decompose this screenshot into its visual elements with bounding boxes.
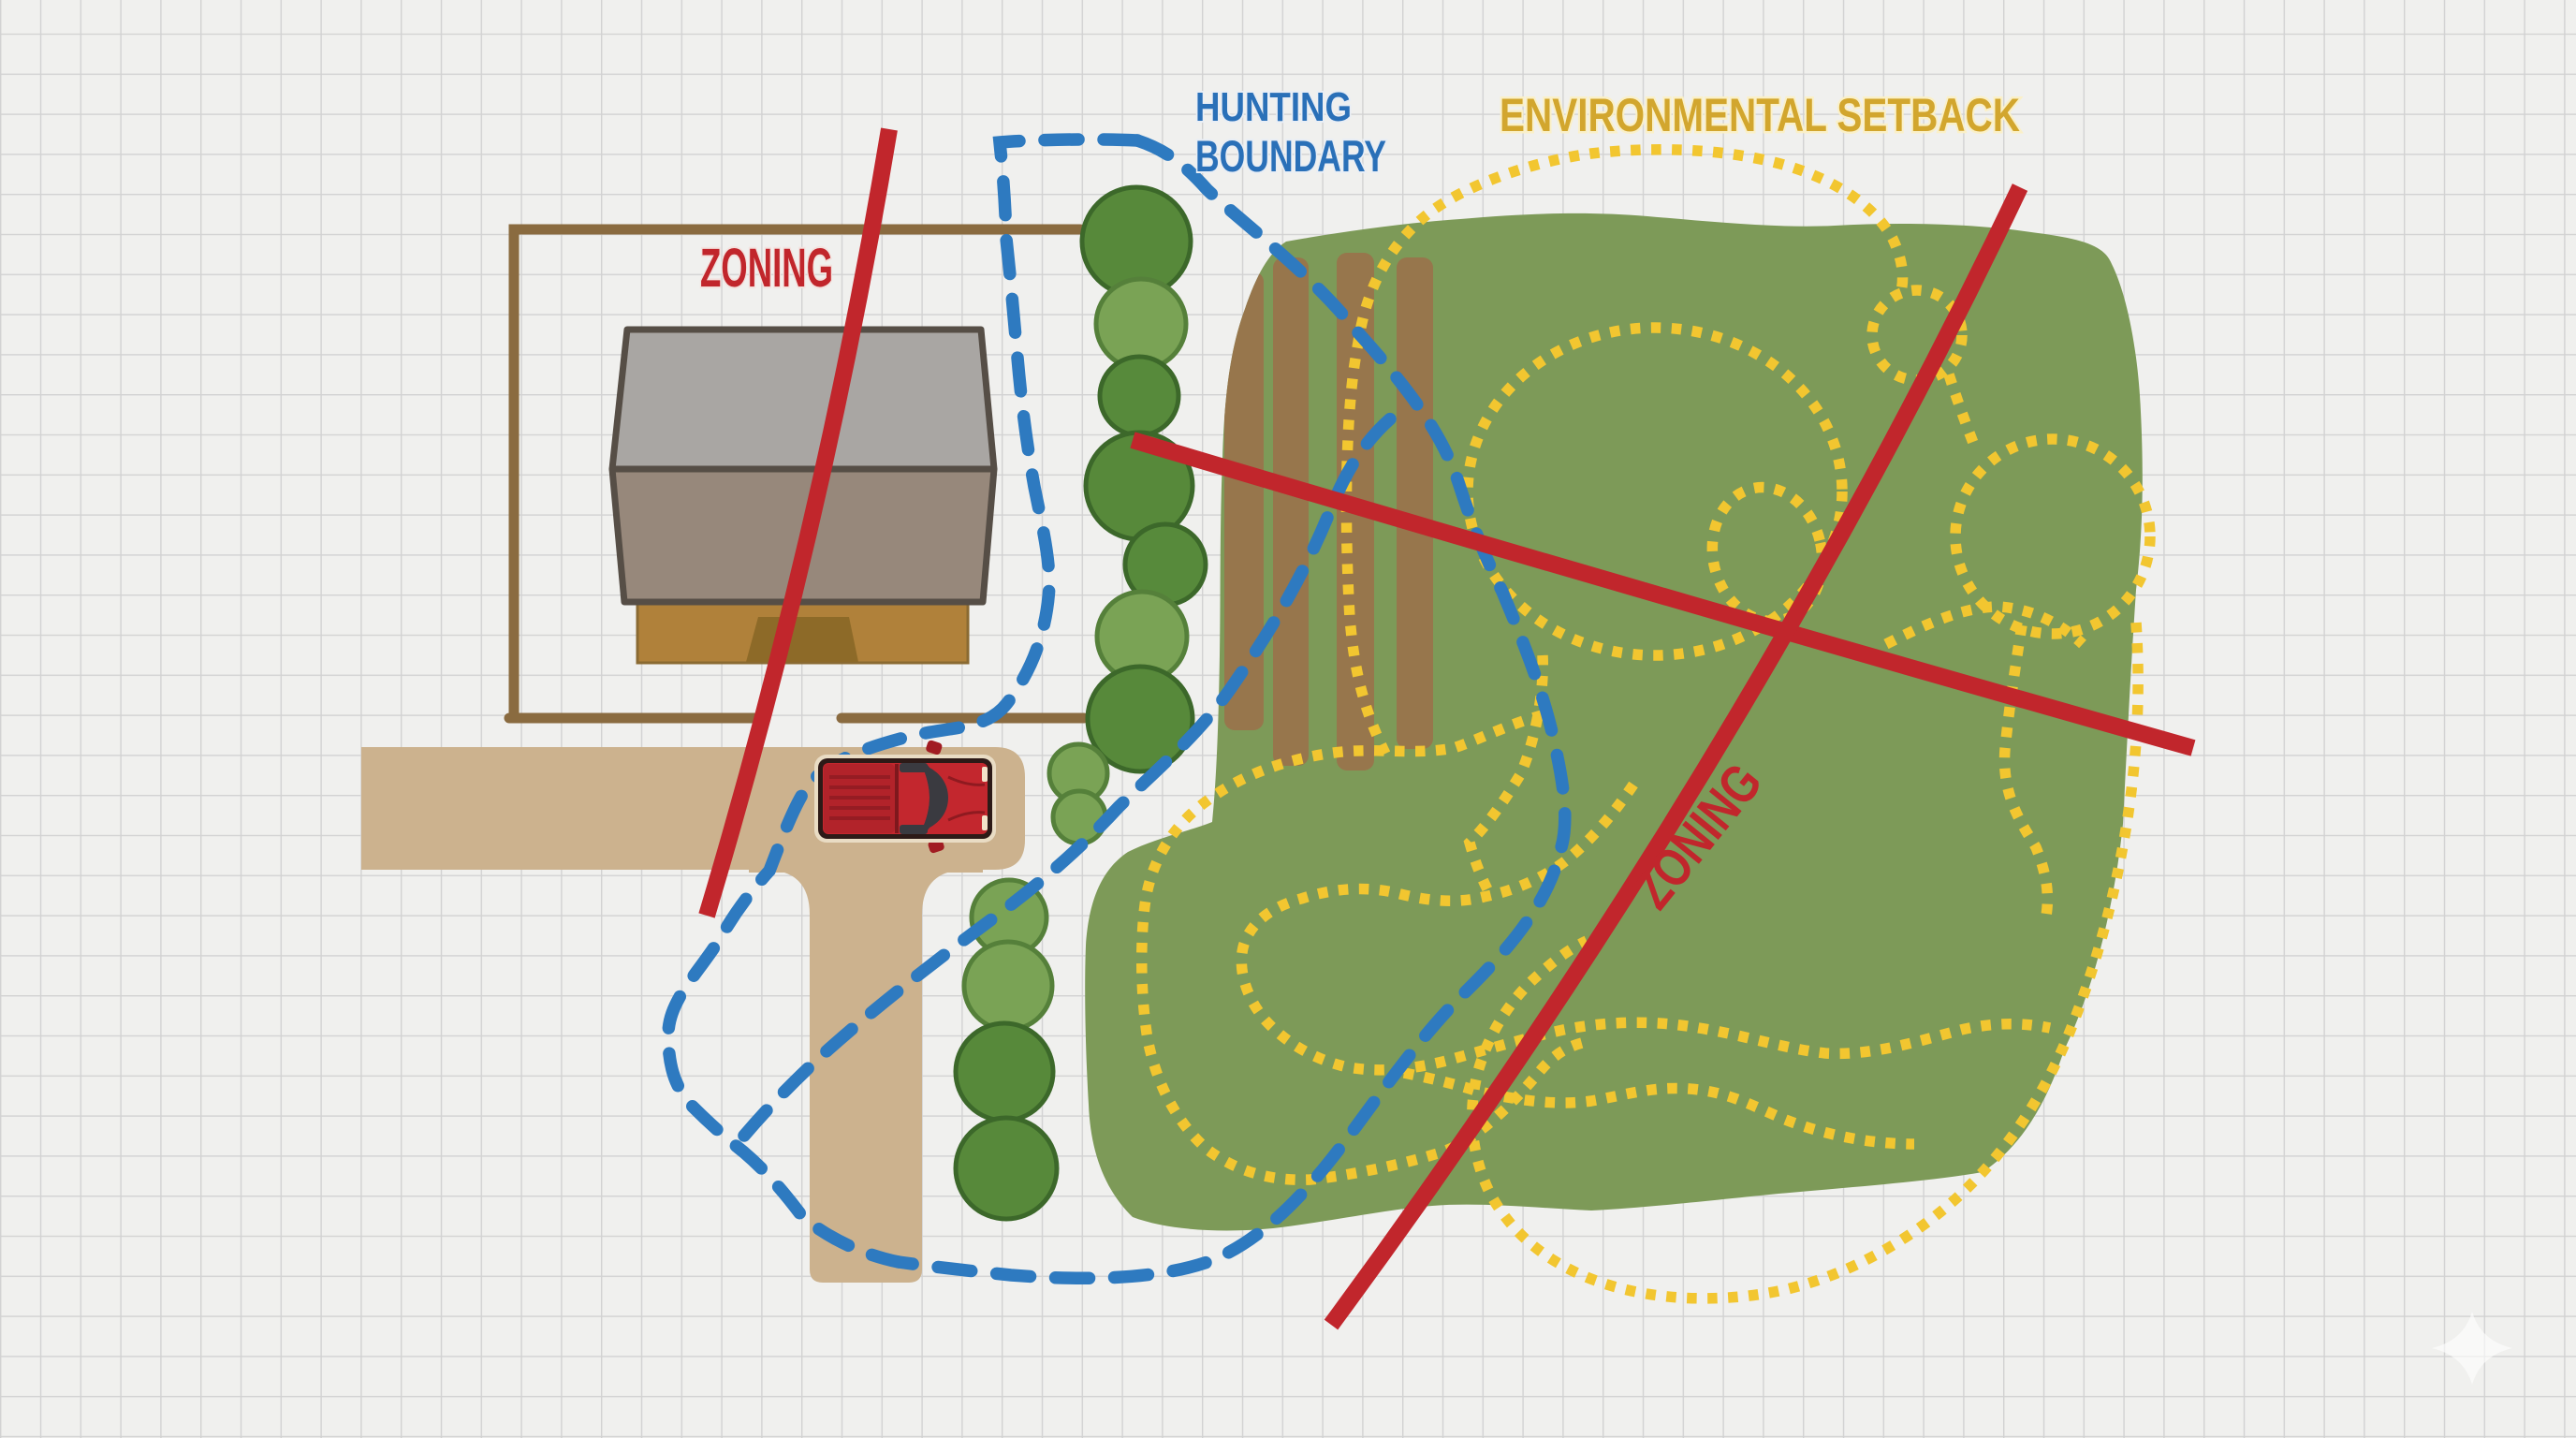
- svg-text:BOUNDARY: BOUNDARY: [1195, 131, 1386, 181]
- svg-text:ZONING: ZONING: [700, 238, 833, 299]
- svg-text:ENVIRONMENTAL SETBACK: ENVIRONMENTAL SETBACK: [1500, 89, 2020, 141]
- svg-text:HUNTING: HUNTING: [1195, 84, 1352, 130]
